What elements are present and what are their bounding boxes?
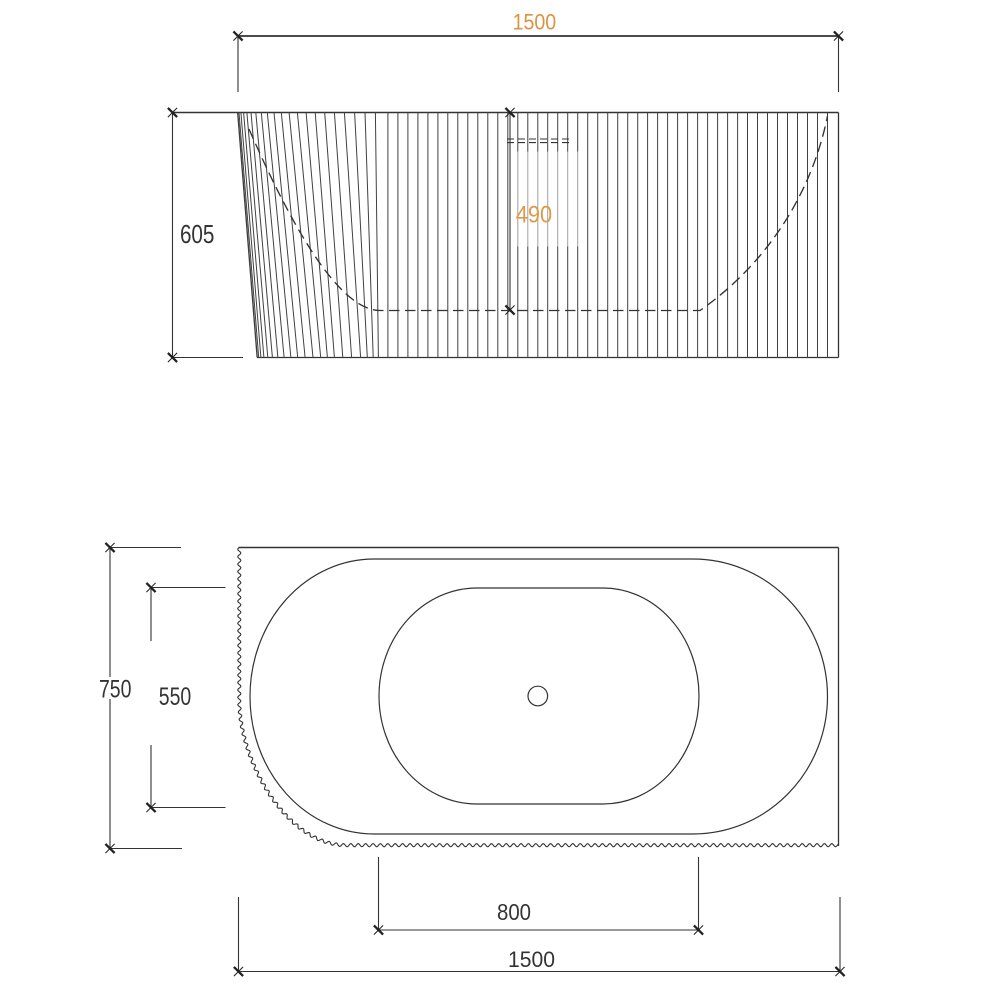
svg-text:490: 490 <box>516 201 552 228</box>
svg-text:1500: 1500 <box>508 947 555 972</box>
svg-text:550: 550 <box>159 683 192 711</box>
svg-text:750: 750 <box>99 675 132 703</box>
svg-text:1500: 1500 <box>513 9 557 34</box>
svg-text:605: 605 <box>180 219 215 249</box>
svg-text:800: 800 <box>497 899 531 925</box>
